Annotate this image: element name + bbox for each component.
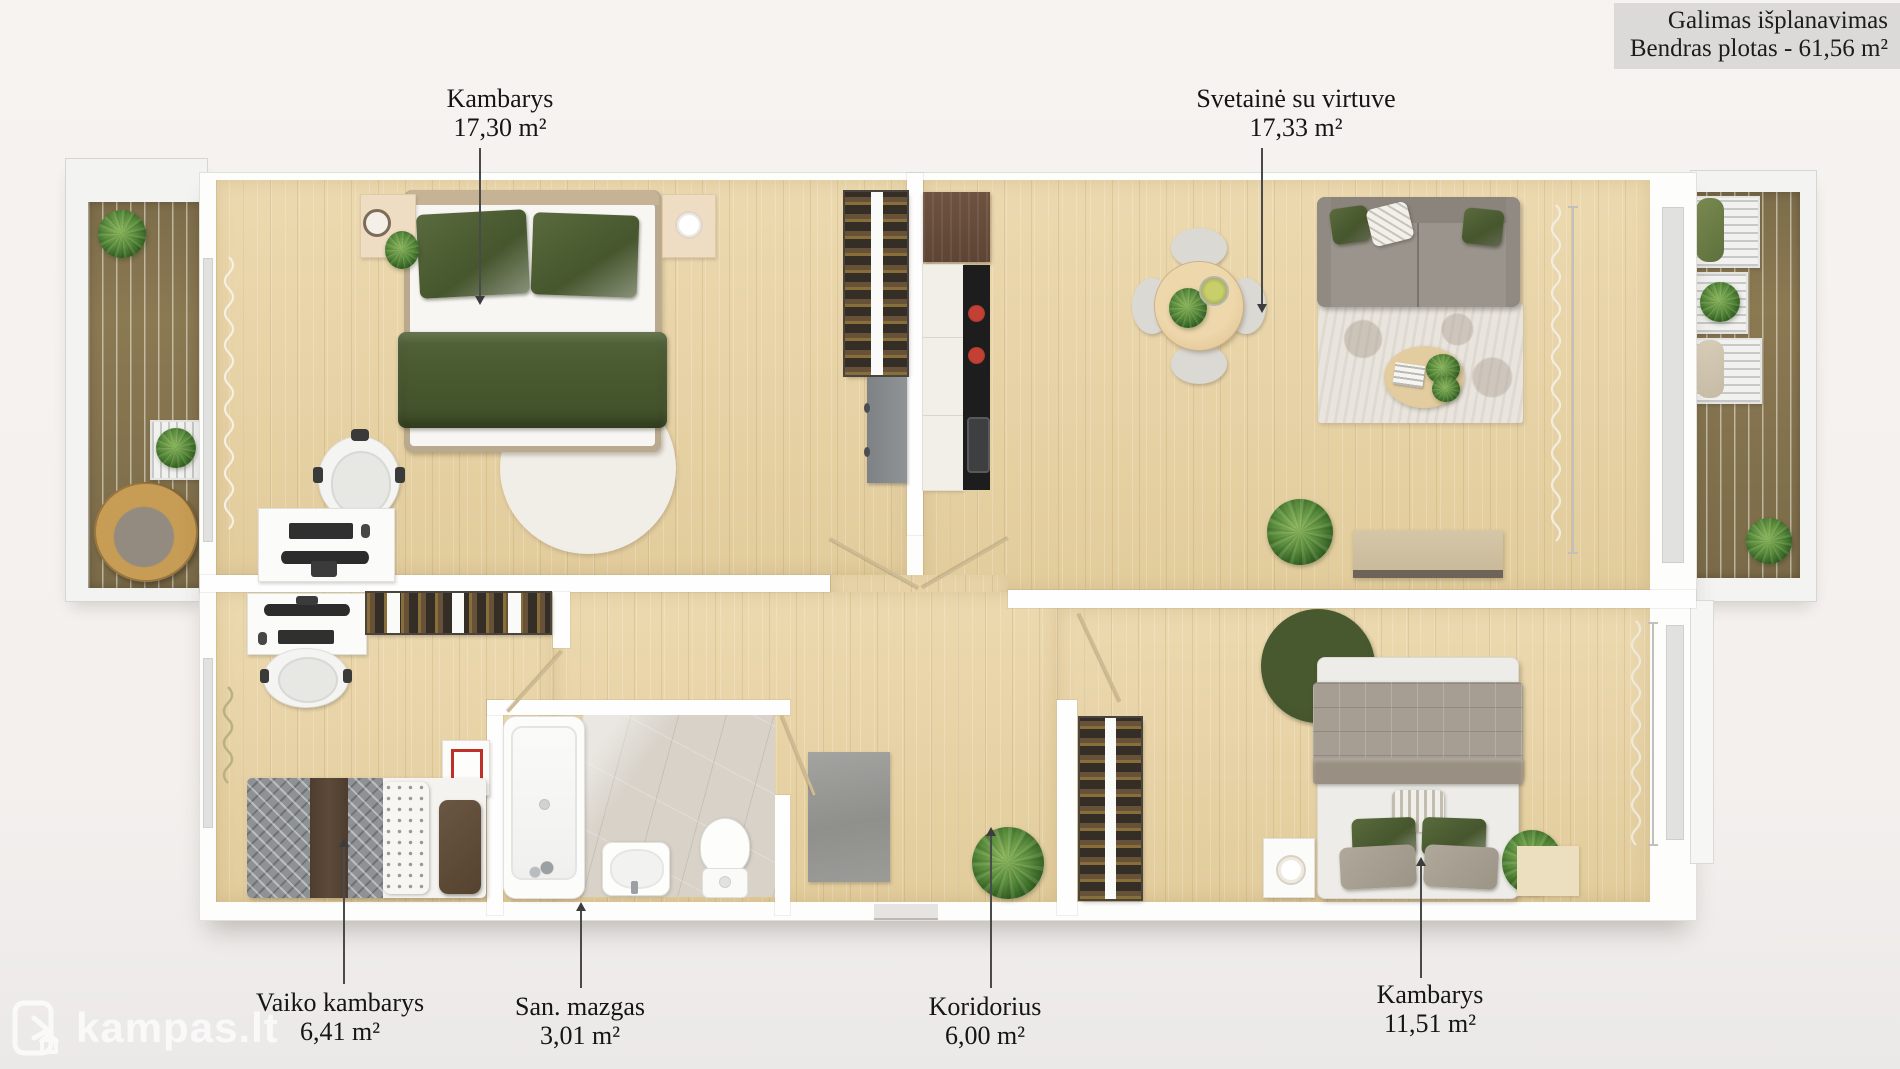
tv-stand	[1353, 530, 1503, 578]
pillow	[531, 212, 640, 298]
dining-chair	[1171, 344, 1227, 384]
monitor-stand	[311, 561, 337, 577]
sofa-seat-seam	[1417, 223, 1419, 307]
wall	[775, 795, 790, 915]
duvet	[398, 332, 667, 428]
balcony-chair-beige	[1694, 338, 1762, 404]
toilet-bowl	[700, 818, 750, 874]
pillow-gray	[1423, 844, 1499, 890]
handle	[864, 447, 870, 457]
kids-wardrobe-clothes	[367, 593, 550, 633]
hanging-rattan-chair	[94, 482, 198, 582]
room-label-bedroom-small: Kambarys 11,51 m²	[1300, 980, 1560, 1038]
curtain-rod	[1652, 622, 1654, 846]
left-balcony-deck	[88, 202, 202, 588]
floorplan-canvas: Galimas išplanavimas Bendras plotas - 61…	[0, 0, 1900, 1069]
window-frame	[1690, 600, 1714, 864]
armrest	[343, 669, 352, 683]
leader-arrow	[576, 897, 586, 911]
wall	[553, 592, 570, 648]
double-bed	[404, 190, 661, 452]
sofa	[1317, 197, 1520, 307]
leader-arrow	[1416, 852, 1426, 866]
headboard	[406, 190, 659, 205]
cup-icon	[675, 211, 703, 239]
leader-arrow	[339, 833, 349, 847]
sink-faucet-icon	[631, 881, 638, 894]
kitchen-tall-unit	[923, 192, 990, 262]
curtain-icon	[221, 686, 235, 798]
balcony-chair-green	[1694, 196, 1760, 268]
nightstand	[360, 194, 416, 258]
wall	[487, 700, 790, 715]
monitor-stand	[296, 596, 318, 605]
leader-line	[1261, 148, 1263, 306]
balcony-plant-icon	[1746, 518, 1792, 564]
dresser	[867, 377, 907, 483]
leader-line	[1420, 861, 1422, 978]
window-glass	[203, 658, 213, 828]
keyboard-icon	[289, 523, 353, 539]
kids-desk-chair	[263, 648, 349, 708]
wardrobe-divider	[871, 192, 883, 375]
leader-line	[990, 831, 992, 988]
cabinet-seam	[923, 415, 963, 416]
watermark-text: kampas.lt	[76, 1004, 279, 1052]
balcony-table	[150, 420, 204, 480]
floor-plant-icon	[1267, 499, 1333, 565]
sofa-pillow	[1461, 207, 1505, 247]
pillow-dotted	[383, 782, 429, 894]
kitchen-counter	[923, 265, 963, 490]
curtain-icon	[1629, 620, 1645, 848]
room-label-bathroom: San. mazgas 3,01 m²	[450, 992, 710, 1050]
hallway-plant-icon	[972, 827, 1044, 899]
bedroom-wardrobe-clothes	[1080, 718, 1141, 899]
nightstand	[662, 194, 716, 258]
wall	[907, 173, 923, 535]
stove-burner-icon	[968, 347, 985, 364]
sink	[602, 842, 670, 896]
armrest	[313, 467, 323, 483]
room-name: Kambarys	[370, 84, 630, 113]
room-name: San. mazgas	[450, 992, 710, 1021]
wall	[1008, 590, 1696, 608]
coffee-table	[1384, 346, 1464, 408]
wardrobe-divider	[508, 593, 521, 633]
window-glass	[1666, 625, 1684, 840]
stove-burner-icon	[968, 305, 985, 322]
chair-seat	[278, 657, 338, 703]
kampas-logo-icon	[12, 1000, 64, 1056]
balcony-side-table	[1694, 272, 1748, 334]
desk	[258, 508, 395, 582]
pillow-brown	[439, 800, 481, 894]
room-name: Koridorius	[855, 992, 1115, 1021]
title-line2: Bendras plotas - 61,56 m²	[1630, 35, 1888, 63]
room-label-living-kitchen: Svetainė su virtuve 17,33 m²	[1166, 84, 1426, 142]
toilet	[700, 818, 748, 898]
table-bowl	[1199, 276, 1229, 306]
room-area: 17,30 m²	[370, 113, 630, 142]
title-box: Galimas išplanavimas Bendras plotas - 61…	[1614, 3, 1900, 69]
sofa-armrest	[1506, 197, 1520, 307]
magazine-icon	[1393, 362, 1426, 388]
room-area: 17,33 m²	[1166, 113, 1426, 142]
room-label-hallway: Koridorius 6,00 m²	[855, 992, 1115, 1050]
right-balcony-deck	[1692, 192, 1800, 578]
wardrobe-divider	[1105, 718, 1116, 899]
mouse-icon	[361, 524, 370, 538]
mouse-icon	[258, 632, 267, 645]
hallway-rug	[808, 752, 890, 882]
leader-line	[479, 148, 481, 298]
handle	[864, 403, 870, 413]
room-name: Kambarys	[1300, 980, 1560, 1009]
wardrobe-divider	[452, 593, 464, 633]
headrest	[351, 429, 369, 441]
bathtub-faucet-icon	[526, 859, 556, 881]
toilet-button	[719, 876, 731, 888]
leader-arrow	[986, 822, 996, 836]
kids-desk	[247, 593, 367, 655]
palm-sprig-icon	[385, 231, 419, 269]
window-glass	[1662, 207, 1684, 563]
room-label-bedroom-large: Kambarys 17,30 m²	[370, 84, 630, 142]
pillow-gray	[1339, 844, 1417, 890]
armrest	[395, 467, 405, 483]
monitor-icon	[264, 604, 350, 616]
table-plant-icon	[1432, 376, 1460, 402]
oven-icon	[967, 417, 990, 473]
pillow	[416, 209, 530, 299]
cup-icon	[1276, 855, 1306, 885]
watermark: kampas.lt	[12, 1000, 279, 1056]
leader-arrow	[1257, 304, 1267, 318]
bathtub-drain	[539, 799, 550, 810]
balcony-plant-icon	[98, 210, 146, 258]
entry-door	[874, 904, 938, 920]
keyboard-icon	[278, 630, 334, 644]
curtain-icon	[1549, 204, 1565, 554]
sofa-pillow	[1329, 205, 1372, 246]
curtain-rod	[1572, 206, 1574, 554]
sofa-pillow-pattern	[1365, 200, 1415, 247]
room-area: 3,01 m²	[450, 1021, 710, 1050]
wall	[1057, 700, 1077, 915]
window-glass	[203, 258, 213, 542]
chair-seat	[331, 451, 391, 515]
tv-stand-shadow	[1353, 570, 1503, 578]
potted-plant-icon	[156, 428, 196, 468]
armrest	[260, 669, 269, 683]
chair-cushion-green	[1696, 198, 1724, 262]
chair-cushion-beige	[1696, 340, 1724, 398]
potted-plant-icon	[1700, 282, 1740, 322]
beige-mat	[1517, 846, 1579, 896]
nightstand	[1263, 838, 1315, 898]
wall	[487, 700, 503, 915]
room-name: Svetainė su virtuve	[1166, 84, 1426, 113]
clock-icon	[363, 209, 391, 237]
leader-line	[343, 842, 345, 984]
curtain-icon	[222, 256, 236, 542]
cabinet-seam	[923, 337, 963, 338]
leader-line	[580, 906, 582, 988]
leader-arrow	[475, 296, 485, 310]
dining-table	[1155, 262, 1243, 350]
title-line1: Galimas išplanavimas	[1630, 7, 1888, 35]
room-area: 11,51 m²	[1300, 1009, 1560, 1038]
bathtub	[503, 716, 585, 899]
wardrobe-clothes	[845, 192, 907, 375]
blanket-fold	[1313, 758, 1523, 784]
wardrobe-divider	[387, 593, 400, 633]
kids-bed	[247, 778, 486, 898]
kitchen-worktop-dark	[963, 265, 990, 490]
room-area: 6,00 m²	[855, 1021, 1115, 1050]
